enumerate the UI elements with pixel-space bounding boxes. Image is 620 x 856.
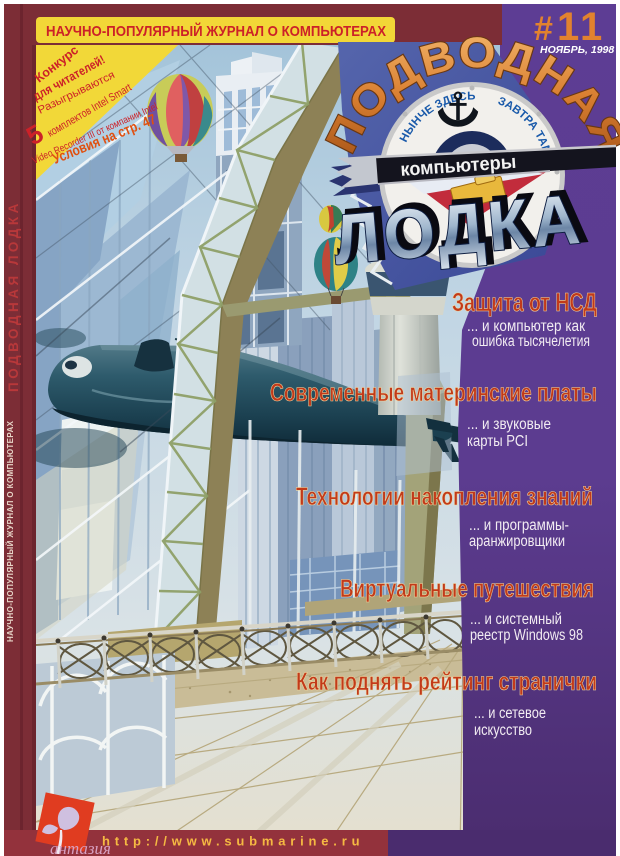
svg-text:антазия: антазия xyxy=(50,839,111,856)
svg-text:Современные материнские платы: Современные материнские платы xyxy=(270,379,597,407)
svg-text:Технологии накопления знаний: Технологии накопления знаний xyxy=(296,483,593,511)
svg-text:http://www.submarine.ru: http://www.submarine.ru xyxy=(102,834,364,849)
svg-text:искусство: искусство xyxy=(474,722,532,739)
svg-text:реестр Windows 98: реестр Windows 98 xyxy=(470,627,583,644)
svg-text:... и системный: ... и системный xyxy=(470,611,562,628)
svg-text:ПОДВОДНАЯ ЛОДКА: ПОДВОДНАЯ ЛОДКА xyxy=(6,200,21,392)
svg-text:... и программы-: ... и программы- xyxy=(469,517,569,534)
svg-text:Виртуальные путешествия: Виртуальные путешествия xyxy=(340,575,594,603)
svg-text:ошибка тысячелетия: ошибка тысячелетия xyxy=(472,333,590,350)
svg-text:11: 11 xyxy=(557,5,605,49)
svg-text:Защита от НСД: Защита от НСД xyxy=(452,287,597,317)
svg-text:... и сетевое: ... и сетевое xyxy=(474,705,546,722)
svg-text:НАУЧНО-ПОПУЛЯРНЫЙ ЖУРНАЛ О КОМ: НАУЧНО-ПОПУЛЯРНЫЙ ЖУРНАЛ О КОМПЬЮТЕРАХ xyxy=(6,420,15,642)
svg-text:карты PCI: карты PCI xyxy=(467,433,528,450)
svg-text:НАУЧНО-ПОПУЛЯРНЫЙ ЖУРНАЛ О КОМ: НАУЧНО-ПОПУЛЯРНЫЙ ЖУРНАЛ О КОМПЬЮТЕРАХ xyxy=(46,22,386,40)
svg-text:Как поднять рейтинг странички: Как поднять рейтинг странички xyxy=(296,668,597,696)
svg-text:аранжировщики: аранжировщики xyxy=(469,533,565,550)
svg-text:... и звуковые: ... и звуковые xyxy=(467,416,551,433)
